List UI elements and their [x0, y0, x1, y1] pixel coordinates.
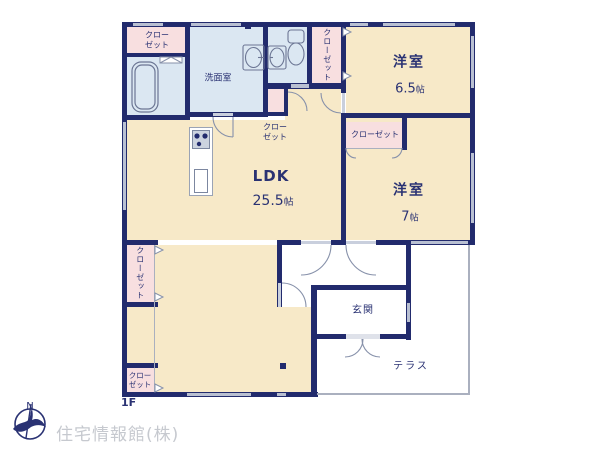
ldk-size: 25.5帖 — [253, 176, 294, 210]
toilet-icon — [288, 30, 304, 65]
plan-symbols: N — [0, 0, 600, 450]
burner-icon — [197, 142, 201, 146]
washbasin-icon — [268, 46, 286, 69]
bath-door-icon — [160, 57, 182, 63]
size-unit: 帖 — [410, 213, 419, 223]
burner-icon — [202, 133, 207, 138]
western1-size: 6.5帖 — [395, 65, 425, 96]
terrace-label: テラス — [393, 361, 429, 373]
closet-label: クローゼット — [322, 28, 332, 82]
floor-plan: N クロー ゼット 洗面室 クロー ゼット クローゼット 洋室 6.5帖 クロー… — [0, 0, 600, 450]
western2-size: 7帖 — [401, 193, 418, 224]
closet-label: クローゼット — [135, 246, 145, 300]
floor-label: 1F — [121, 396, 136, 409]
compass-icon: N — [13, 401, 46, 439]
washbasin-icon — [243, 45, 264, 70]
closet-label: クロー ゼット — [145, 30, 169, 49]
size-unit: 帖 — [284, 197, 294, 208]
burner-icon — [194, 133, 199, 138]
entrance-label: 玄関 — [352, 305, 374, 317]
slide-door-tick — [155, 28, 351, 392]
size-number: 25.5 — [253, 193, 284, 209]
washroom-label: 洗面室 — [204, 74, 231, 85]
closet-label: クロー ゼット — [263, 122, 287, 141]
company-name: 住宅情報館(株) — [56, 420, 179, 445]
bathtub-icon — [132, 62, 158, 112]
closet-label: クロー ゼット — [129, 371, 152, 389]
closet-label: クローゼット — [351, 130, 399, 140]
size-number: 6.5 — [395, 81, 416, 96]
size-unit: 帖 — [416, 85, 425, 95]
compass-north-label: N — [26, 401, 33, 412]
